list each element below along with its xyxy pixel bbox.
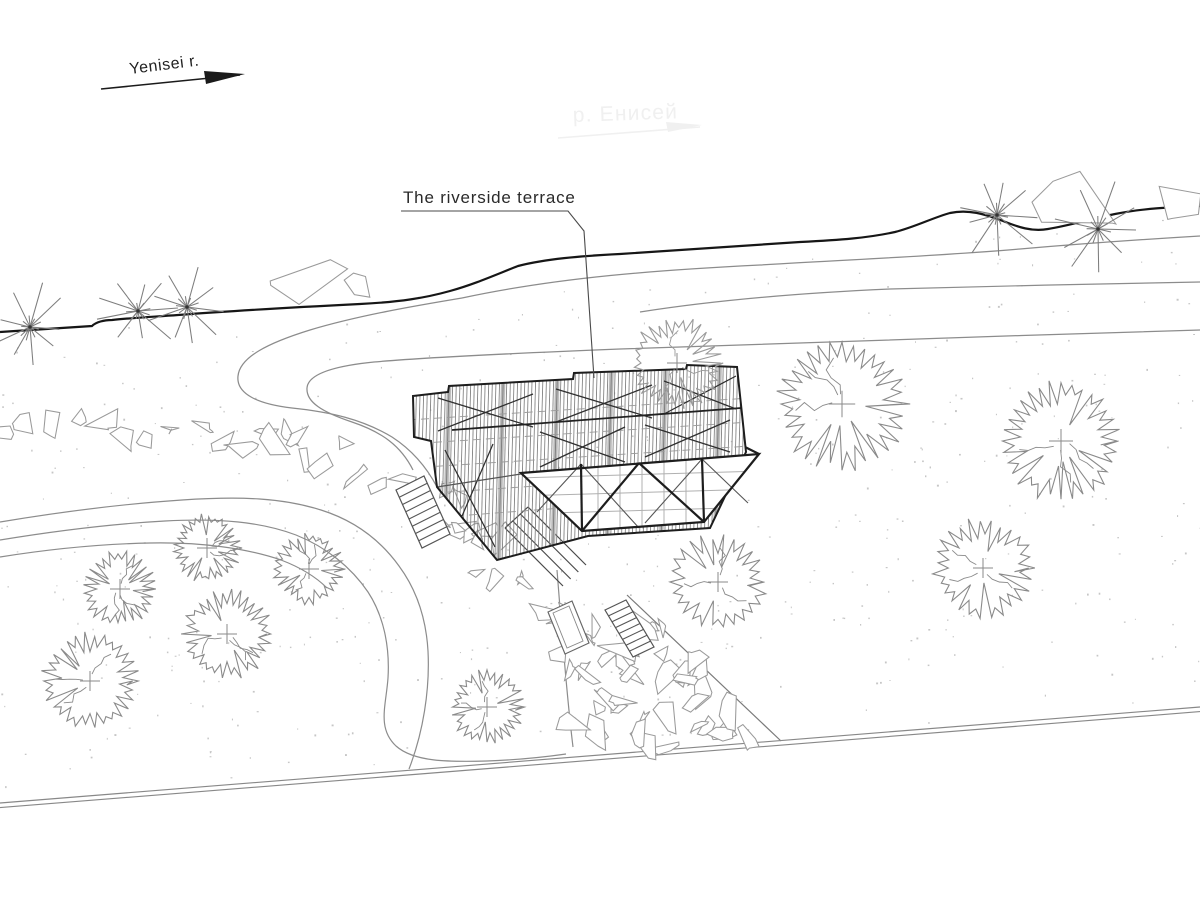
rock [161,427,180,435]
contour-hairpin-outer [238,298,462,487]
tree-branch-line [202,638,222,654]
walkway-landing [548,601,589,654]
rock [1159,186,1200,219]
river-direction-arrowhead [204,71,245,84]
trail-line-c [0,543,327,588]
terrace-annotation: The riverside terrace [401,188,594,378]
shrub-ray [128,303,171,339]
tree-symbol [181,589,271,678]
rock [631,719,645,748]
rock [565,659,576,680]
rock [556,712,590,730]
rock [592,614,600,638]
shrub-center [995,213,999,217]
tree-branch-line [298,547,310,564]
tree-symbol [452,670,524,743]
shrub-ray [179,288,213,313]
shrub-star-symbol [148,267,223,343]
shrub-ray [1087,229,1136,230]
tree-symbol [274,533,346,605]
rock [653,702,676,734]
tree-branch-line [92,654,111,674]
tree-branch-line [987,574,1012,588]
shrub-center [28,325,32,329]
tree-branch-line [120,595,139,607]
shrub-center [1096,227,1100,231]
tree-symbol [41,632,138,728]
tree-canopy [452,670,524,743]
rock [486,568,504,591]
rock [339,436,354,450]
shrub-ray [986,206,1032,244]
tree-symbol [174,514,243,581]
tree-branch-line [684,582,711,587]
terrace-label: The riverside terrace [403,188,576,207]
shrub-ray [26,283,42,341]
tree-branch-line [670,330,679,356]
terrace-leader-line [401,211,594,378]
tree-branch-line [296,573,306,590]
shrub-ray [23,321,53,346]
rock [1032,171,1116,224]
shrub-ray [1098,216,1099,272]
shrub-center [185,305,189,309]
rock [738,725,759,751]
tree-canopy [777,342,911,471]
trail-line-a [0,498,428,769]
contour-mid [640,282,1200,312]
rock [344,464,368,488]
rock [270,260,347,305]
rock [654,646,668,661]
rock [192,421,214,433]
shrub-center [136,309,140,313]
tree-branch-line [949,573,977,581]
shrub-star-symbol [0,283,61,365]
tree-symbol [84,551,156,622]
tree-symbol [1003,381,1120,499]
contour-upper [462,236,1200,298]
rock [585,714,605,750]
site-plan-canvas: р. Енисей Yenisei r. The riverside terra… [0,0,1200,920]
tree-symbol [670,535,766,627]
river-direction-annotation: Yenisei r. [101,53,245,89]
shrub-ray [988,190,1025,222]
rock [468,569,485,577]
tree-canopy [174,514,243,581]
tree-branch-line [952,550,976,564]
river-direction-label: Yenisei r. [128,53,200,78]
tree-branch-line [56,679,83,680]
tree-branch-line [310,545,317,564]
tree-branch-line [1070,444,1094,469]
tree-branch-line [808,371,838,395]
tree-branch-line [114,593,119,615]
faint-river-annotation: р. Енисей [558,100,702,138]
site-plan-drawing: р. Енисей Yenisei r. The riverside terra… [0,0,1200,920]
shrub-ray [169,276,193,317]
tree-branch-line [826,358,840,394]
rock [85,409,118,430]
faint-river-label: р. Енисей [572,100,678,127]
rock [136,431,152,448]
shrub-star-symbol [97,283,178,339]
shoreline [0,206,1200,332]
shrub-ray [148,303,198,321]
rock [594,701,606,715]
tree-branch-line [1019,446,1053,450]
tree-branch-line [461,703,482,710]
shrub-ray [0,322,41,344]
rock [224,442,259,459]
rock [344,273,370,297]
tree-symbol [777,342,911,471]
tree-canopy [933,519,1035,619]
rock [307,453,333,479]
shrub-star-symbol [960,183,1037,256]
rock [72,409,87,426]
tree-branch-line [796,403,833,411]
tree-branch-line [722,588,746,601]
rock [44,410,60,438]
rock [368,477,386,494]
rock [12,413,32,434]
rock [0,426,14,439]
rock [658,619,666,638]
tree-symbol [933,519,1035,619]
rock [110,427,133,452]
